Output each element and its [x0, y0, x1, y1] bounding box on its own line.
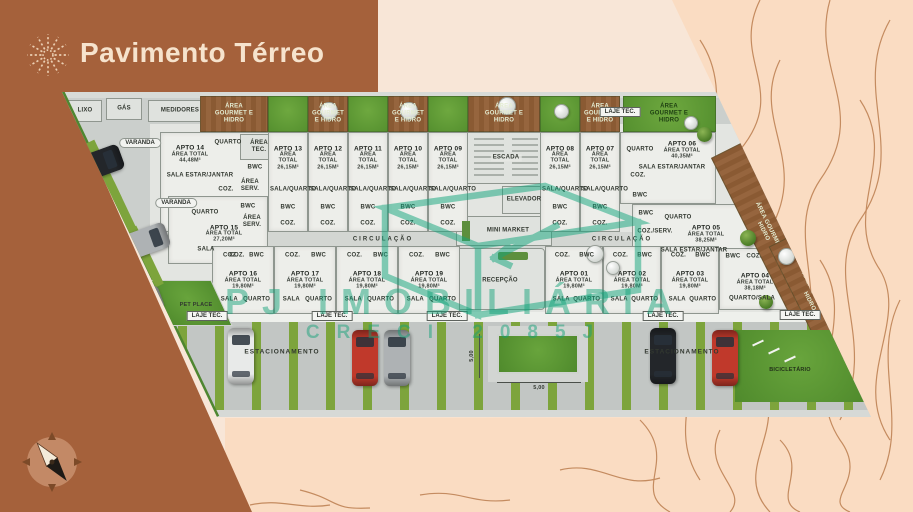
- pet-place-label: PET PLACE: [180, 302, 213, 308]
- dimension-line-v: [479, 334, 480, 378]
- laje-tec-label: LAJE TEC.: [427, 311, 468, 321]
- varanda-label-2: VARANDA: [155, 198, 197, 208]
- unit-apto-15-area: ÁREA TOTAL 27,20m²: [198, 231, 250, 244]
- unit-apto-02-coz: COZ.: [613, 253, 628, 260]
- unit-apto-14-quarto: QUARTO: [214, 140, 241, 147]
- laje-tec-label: LAJE TEC.: [187, 311, 228, 321]
- room-escada-label: ESCADA: [491, 155, 522, 162]
- reception-desk: [498, 252, 528, 260]
- unit-apto-08-salaquarto: SALA/QUARTO: [542, 187, 578, 194]
- unit-apto-04-bwc: BWC: [726, 254, 741, 261]
- tree: [697, 127, 712, 142]
- unit-apto-14-bwc: BWC: [248, 165, 263, 172]
- gourmet-label: ÁREA GOURMET E HIDRO: [482, 104, 526, 125]
- unit-apto-16-quarto: QUARTO: [243, 297, 270, 304]
- unit-apto-17-bwc: BWC: [311, 253, 326, 260]
- unit-apto-06-sala: SALA ESTAR/JANTAR: [639, 165, 706, 172]
- car-red: [712, 330, 738, 386]
- unit-apto-18-name: APTO 18: [353, 270, 381, 277]
- unit-apto-14-name: APTO 14: [176, 144, 204, 151]
- courtyard-green: [497, 334, 579, 374]
- unit-apto-06-bwc: BWC: [633, 193, 648, 200]
- car-white: [228, 328, 254, 384]
- unit-apto-17-coz: COZ.: [285, 253, 300, 260]
- unit-apto-10-area: ÁREA TOTAL 26,15m²: [390, 152, 426, 171]
- gourmet-segment: [348, 96, 388, 132]
- unit-apto-02-bwc: BWC: [637, 253, 652, 260]
- room-medidores-label: MEDIDORES: [161, 108, 199, 115]
- unit-apto-04-name: APTO 04: [741, 272, 769, 279]
- unit-apto-06-name: APTO 06: [668, 140, 696, 147]
- unit-apto-13-coz: COZ.: [280, 221, 295, 228]
- unit-apto-06-area: ÁREA TOTAL 40,35m²: [662, 148, 702, 161]
- unit-apto-15-sala: SALA: [197, 247, 214, 254]
- unit-apto-14-coz: COZ.: [218, 187, 233, 194]
- unit-apto-01-quarto: QUARTO: [573, 297, 600, 304]
- unit-apto-14-area: ÁREA TOTAL 44,48m²: [170, 152, 210, 165]
- unit-apto-16-bwc: BWC: [249, 253, 264, 260]
- unit-apto-10-salaquarto: SALA/QUARTO: [390, 187, 426, 194]
- unit-apto-03-bwc: BWC: [695, 253, 710, 260]
- car-silver: [384, 330, 410, 386]
- umbrella-dome: [554, 104, 569, 119]
- unit-apto-16-name: APTO 16: [229, 270, 257, 277]
- unit-apto-01-bwc: BWC: [579, 253, 594, 260]
- unit-apto-19-name: APTO 19: [415, 270, 443, 277]
- unit-apto-02-name: APTO 02: [618, 270, 646, 277]
- unit-apto-02-sala: SALA: [611, 297, 628, 304]
- unit-apto-06-coz: COZ.: [630, 173, 645, 180]
- unit-apto-19-coz: COZ.: [409, 253, 424, 260]
- unit-apto-03-name: APTO 03: [676, 270, 704, 277]
- unit-apto-19-sala: SALA: [407, 297, 424, 304]
- floor-plan-canvas: Pavimento Térreo LIXO GÁS: [0, 0, 913, 512]
- unit-apto-05-name: APTO 05: [692, 224, 720, 231]
- gourmet-segment: [428, 96, 468, 132]
- unit-apto-19-bwc: BWC: [435, 253, 450, 260]
- gourmet-label: ÁREA GOURMET E HIDRO: [649, 104, 689, 125]
- unit-apto-09-coz: COZ.: [440, 221, 455, 228]
- unit-apto-08-bwc: BWC: [553, 205, 568, 212]
- unit-apto-08-coz: COZ.: [552, 221, 567, 228]
- unit-apto-16-sala: SALA: [221, 297, 238, 304]
- gourmet-label: ÁREA GOURMET E HIDRO: [310, 104, 346, 125]
- gourmet-label: ÁREA GOURMET E HIDRO: [390, 104, 426, 125]
- unit-apto-04-quartosala: QUARTO/SALA: [729, 296, 775, 303]
- unit-apto-17-area: ÁREA TOTAL 19,80m²: [277, 278, 333, 291]
- varanda-label-1: VARANDA: [119, 138, 161, 148]
- gourmet-segment: [268, 96, 308, 132]
- laje-tec-label: LAJE TEC.: [312, 311, 353, 321]
- unit-apto-09-bwc: BWC: [441, 205, 456, 212]
- unit-apto-11-coz: COZ.: [360, 221, 375, 228]
- laje-tec-label: LAJE TEC.: [600, 107, 641, 117]
- unit-apto-18-quarto: QUARTO: [367, 297, 394, 304]
- unit-apto-05-quarto: QUARTO: [664, 215, 691, 222]
- unit-apto-13-area: ÁREA TOTAL 26,15m²: [270, 152, 306, 171]
- car-black: [650, 328, 676, 384]
- unit-apto-01-name: APTO 01: [560, 270, 588, 277]
- room-lixo-label: LIXO: [78, 108, 93, 115]
- laje-tec-label: LAJE TEC.: [780, 310, 821, 320]
- unit-apto-12-salaquarto: SALA/QUARTO: [310, 187, 346, 194]
- unit-apto-07-bwc: BWC: [593, 205, 608, 212]
- unit-apto-09-salaquarto: SALA/QUARTO: [430, 187, 466, 194]
- unit-apto-07-salaquarto: SALA/QUARTO: [582, 187, 618, 194]
- unit-apto-11-area: ÁREA TOTAL 26,15m²: [350, 152, 386, 171]
- laje-tec-label: LAJE TEC.: [643, 311, 684, 321]
- area-serv-label-2: ÁREA SERV.: [240, 215, 264, 229]
- unit-apto-13-salaquarto: SALA/QUARTO: [270, 187, 306, 194]
- market-shelf: [462, 221, 470, 241]
- unit-apto-05-bwc: BWC: [639, 211, 654, 218]
- unit-apto-13-bwc: BWC: [281, 205, 296, 212]
- unit-apto-05-cozserv: COZ./SERV.: [637, 229, 672, 236]
- area-serv-label-1: ÁREA SERV.: [238, 179, 262, 193]
- unit-apto-09-area: ÁREA TOTAL 26,15m²: [430, 152, 466, 171]
- unit-apto-12-bwc: BWC: [321, 205, 336, 212]
- circulacao-label-2: CIRCULAÇÃO: [592, 237, 652, 244]
- unit-apto-03-area: ÁREA TOTAL 19,80m²: [664, 278, 716, 291]
- unit-apto-02-area: ÁREA TOTAL 19,80m²: [606, 278, 658, 291]
- unit-apto-18-bwc: BWC: [373, 253, 388, 260]
- unit-apto-12-coz: COZ.: [320, 221, 335, 228]
- unit-apto-06-quarto: QUARTO: [626, 147, 653, 154]
- unit-apto-12-area: ÁREA TOTAL 26,15m²: [310, 152, 346, 171]
- unit-apto-03-sala: SALA: [669, 297, 686, 304]
- unit-apto-17-quarto: QUARTO: [305, 297, 332, 304]
- compass-icon: [14, 420, 90, 500]
- bicicletario-label: BICICLETÁRIO: [769, 367, 811, 373]
- estacionamento-label-1: ESTACIONAMENTO: [244, 348, 319, 355]
- unit-apto-07-coz: COZ.: [592, 221, 607, 228]
- unit-apto-15-bwc: BWC: [241, 204, 256, 211]
- unit-apto-01-area: ÁREA TOTAL 19,80m²: [548, 278, 600, 291]
- sunburst-icon: [24, 31, 72, 79]
- unit-apto-15-quarto: QUARTO: [191, 210, 218, 217]
- estacionamento-label-2: ESTACIONAMENTO: [644, 348, 719, 355]
- unit-apto-19-area: ÁREA TOTAL 19,80m²: [401, 278, 457, 291]
- circulacao-label-1: CIRCULAÇÃO: [353, 237, 413, 244]
- unit-apto-18-sala: SALA: [345, 297, 362, 304]
- unit-apto-18-coz: COZ.: [347, 253, 362, 260]
- room-recepcao-label: RECEPÇÃO: [482, 278, 518, 285]
- page-title: Pavimento Térreo: [80, 37, 325, 69]
- unit-apto-10-bwc: BWC: [401, 205, 416, 212]
- unit-apto-08-area: ÁREA TOTAL 26,15m²: [542, 152, 578, 171]
- dimension-label-v: 5,00: [469, 350, 475, 362]
- gourmet-label: ÁREA GOURMET E HIDRO: [212, 104, 256, 125]
- unit-apto-11-salaquarto: SALA/QUARTO: [350, 187, 386, 194]
- unit-apto-10-coz: COZ.: [400, 221, 415, 228]
- unit-apto-16-area: ÁREA TOTAL 19,80m²: [215, 278, 271, 291]
- unit-apto-05-area: ÁREA TOTAL 38,25m²: [686, 232, 726, 245]
- unit-apto-04-area: ÁREA TOTAL 38,18m²: [729, 280, 781, 293]
- car-red: [352, 330, 378, 386]
- room-gas-label: GÁS: [117, 106, 131, 113]
- unit-apto-01-sala: SALA: [553, 297, 570, 304]
- unit-apto-03-coz: COZ.: [671, 253, 686, 260]
- unit-apto-01-coz: COZ.: [555, 253, 570, 260]
- room-elevador-label: ELEVADOR: [507, 197, 542, 204]
- unit-apto-07-area: ÁREA TOTAL 26,15m²: [582, 152, 618, 171]
- unit-apto-18-area: ÁREA TOTAL 19,80m²: [339, 278, 395, 291]
- unit-apto-17-name: APTO 17: [291, 270, 319, 277]
- dimension-label-h: 5,00: [533, 385, 545, 391]
- unit-apto-02-quarto: QUARTO: [631, 297, 658, 304]
- dimension-line-h: [497, 382, 581, 383]
- unit-apto-19-quarto: QUARTO: [429, 297, 456, 304]
- unit-apto-11-bwc: BWC: [361, 205, 376, 212]
- unit-apto-04-coz: COZ.: [746, 254, 761, 261]
- unit-apto-16-coz: COZ.: [223, 253, 238, 260]
- unit-apto-17-sala: SALA: [283, 297, 300, 304]
- tree: [740, 230, 756, 246]
- unit-apto-14-sala: SALA ESTAR/JANTAR: [167, 173, 234, 180]
- unit-apto-03-quarto: QUARTO: [689, 297, 716, 304]
- bottom-sidewalk: [150, 410, 872, 417]
- room-mini-market-label: MINI MARKET: [487, 228, 529, 235]
